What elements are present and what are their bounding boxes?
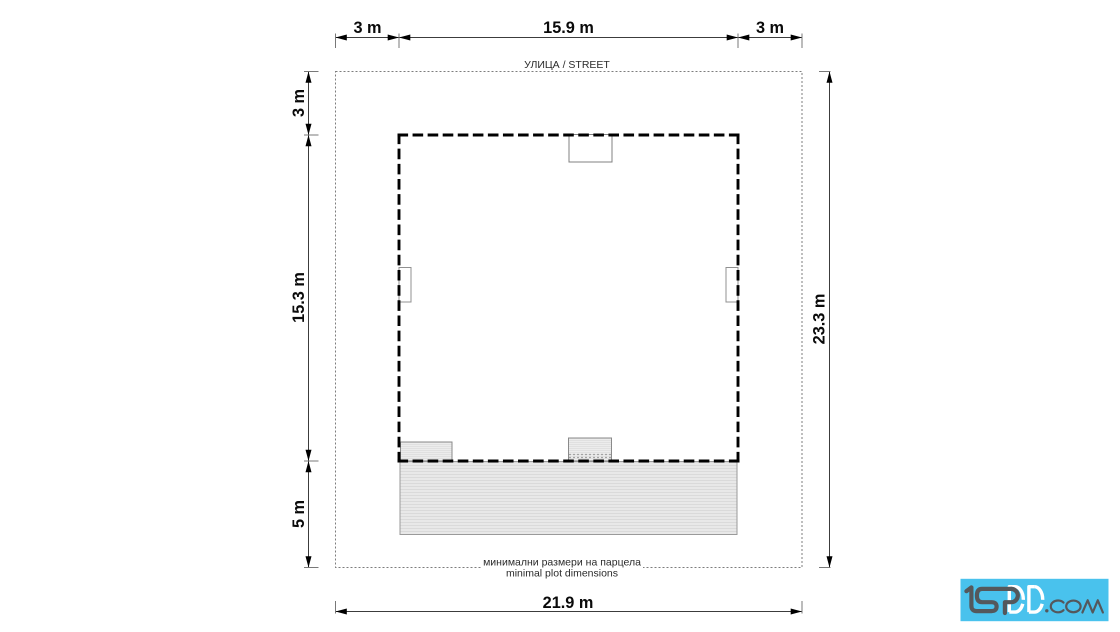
svg-text:5 m: 5 m <box>290 500 308 528</box>
svg-text:УЛИЦА / STREET: УЛИЦА / STREET <box>524 59 610 71</box>
svg-text:minimal plot dimensions: minimal plot dimensions <box>506 568 618 580</box>
svg-text:3 m: 3 m <box>756 19 784 37</box>
svg-text:3 m: 3 m <box>353 19 381 37</box>
svg-text:15.9 m: 15.9 m <box>543 19 594 37</box>
svg-text:23.3 m: 23.3 m <box>811 294 829 345</box>
svg-text:15.3 m: 15.3 m <box>290 272 308 323</box>
svg-text:3 m: 3 m <box>290 89 308 117</box>
svg-text:21.9 m: 21.9 m <box>543 594 594 612</box>
